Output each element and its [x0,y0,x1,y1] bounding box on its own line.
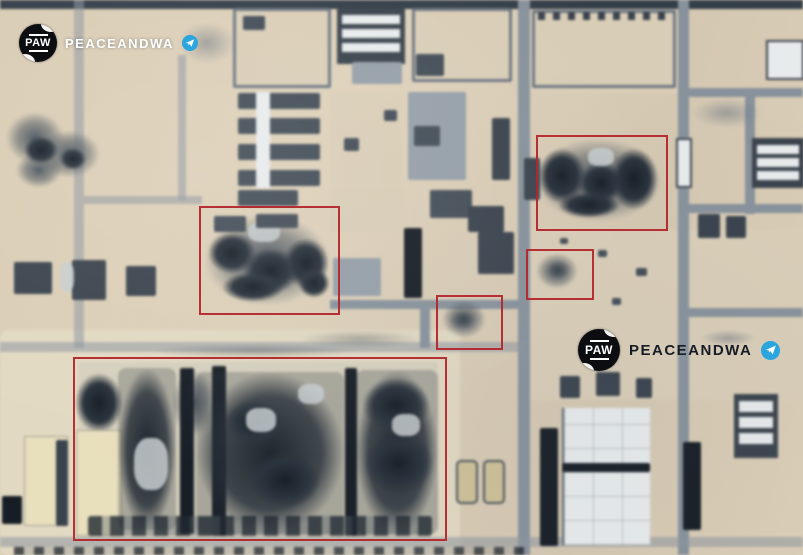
watermark-center-right: PAW PEACEANDWA [578,329,780,371]
roof-stripe [342,43,400,52]
small-object [636,268,647,276]
roof-stripe [739,417,773,428]
logo-line [590,340,609,342]
warehouse-band [562,463,650,472]
building-dark [540,428,558,546]
building-roof [60,262,74,292]
roof-stripe [739,401,773,412]
annotation-box-warehouse-complex-southwest [73,357,447,541]
tower-shadow [404,228,422,298]
walled-compound [532,10,676,88]
shed [596,372,620,396]
storage-row [238,118,320,134]
brand-text: PEACEANDWA [629,342,752,359]
logo-line [590,358,609,360]
roof-stripe [757,145,799,154]
annotation-box-center-small-site [436,295,503,350]
warehouse-white [562,408,650,545]
building [243,16,265,30]
building [126,266,156,296]
logo-line [29,34,48,36]
roof-stripe [757,158,799,167]
small-structure [384,110,397,121]
road-vertical-facility [178,55,186,200]
logo-text: PAW [25,37,51,49]
road-vertical-central [420,306,430,348]
roof-stripe [739,433,773,444]
building [430,190,472,218]
small-object [560,238,568,244]
shed [636,378,652,398]
storage-row [238,170,320,186]
yard [330,186,406,232]
building [698,214,720,238]
telegram-icon [182,35,198,51]
annotation-box-central-west-site [199,206,340,315]
brand-text: PEACEANDWA [65,36,174,51]
roof-stripe [757,171,799,180]
building [14,262,52,294]
building [478,232,514,274]
building [416,54,444,76]
storage-tank [483,460,505,504]
roof-stripe [342,29,400,38]
terrain-smudge [692,98,762,128]
building [492,118,510,180]
storage-tank [456,460,478,504]
satellite-image: PAW PEACEANDWA PAW PEACEANDWA [0,0,803,555]
roof-stripe [342,15,400,24]
yard [330,92,402,184]
perimeter-objects [538,12,670,20]
building [56,440,68,526]
road-horizontal-e2 [678,308,803,317]
annotation-box-northeast-site [536,135,668,231]
small-object [612,298,621,305]
telegram-icon [761,341,780,360]
small-structure [344,138,359,151]
small-object [598,250,607,257]
burn-core [60,148,86,170]
paw-logo: PAW [578,329,620,371]
road-horizontal-ne [678,88,803,97]
building [352,62,402,84]
building [72,260,106,300]
storage-row [238,93,320,109]
storage-row [238,190,298,206]
building-white [766,40,803,80]
building-white [676,138,692,188]
building [468,206,504,232]
road-horizontal-e [678,204,803,213]
building-dark [2,496,22,524]
shed [560,376,580,398]
storage-row [238,144,320,160]
smoke-smudge [300,330,420,348]
cutoff-structures [14,547,524,555]
logo-text: PAW [585,343,613,357]
building [414,126,440,146]
burn-core [24,136,58,164]
annotation-box-east-small-site [526,249,594,300]
logo-line [29,50,48,52]
roof-stripe-vertical [256,92,270,188]
watermark-top-left: PAW PEACEANDWA [19,24,198,62]
building [333,258,381,296]
paw-logo: PAW [19,24,57,62]
building-dark [683,442,701,530]
building [726,216,746,238]
